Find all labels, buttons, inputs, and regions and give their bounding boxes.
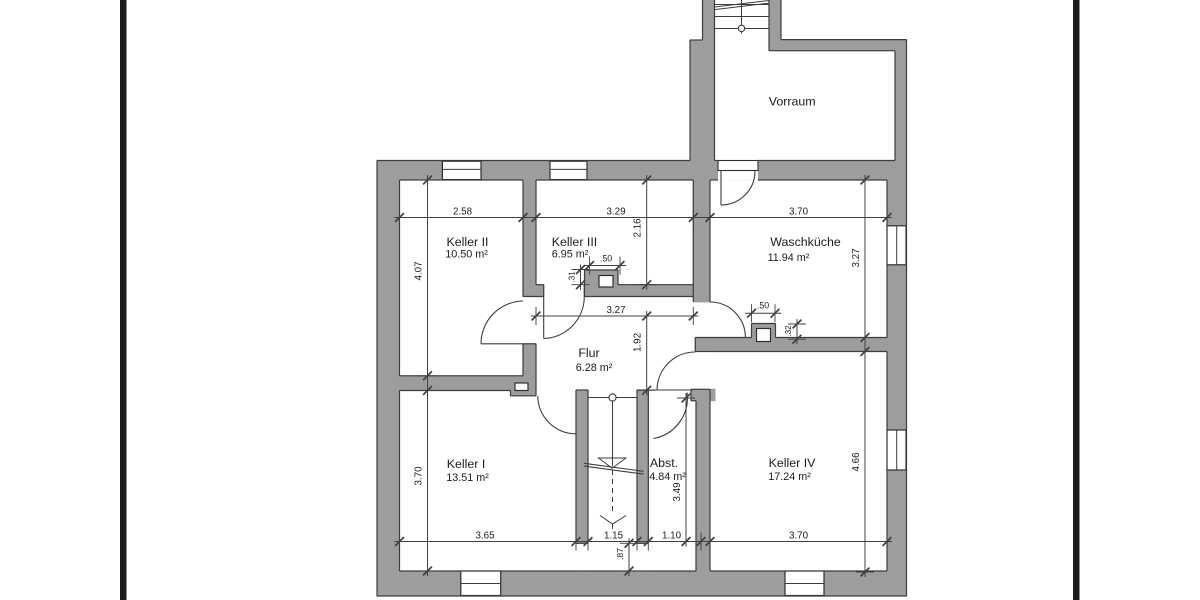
svg-text:Keller III: Keller III [552, 235, 597, 249]
svg-text:Vorraum: Vorraum [769, 95, 816, 109]
svg-text:10.50 m²: 10.50 m² [445, 249, 488, 261]
svg-text:1.92: 1.92 [633, 333, 644, 352]
svg-text:Waschküche: Waschküche [770, 235, 841, 249]
svg-text:3.29: 3.29 [606, 206, 625, 217]
svg-text:17.24 m²: 17.24 m² [768, 471, 811, 483]
svg-text:1.10: 1.10 [662, 530, 682, 541]
svg-text:4.66: 4.66 [851, 452, 862, 472]
svg-text:3.49: 3.49 [672, 482, 683, 501]
svg-text:Keller I: Keller I [447, 457, 486, 471]
svg-text:3.65: 3.65 [475, 530, 495, 541]
svg-text:4.84 m²: 4.84 m² [649, 471, 686, 483]
svg-text:13.51 m²: 13.51 m² [446, 472, 489, 484]
svg-text:3.27: 3.27 [606, 305, 625, 316]
svg-text:.31: .31 [568, 271, 577, 283]
svg-text:.32: .32 [784, 325, 793, 337]
svg-text:6.28 m²: 6.28 m² [576, 362, 613, 374]
svg-text:Keller IV: Keller IV [769, 456, 817, 470]
svg-text:2.58: 2.58 [453, 206, 473, 217]
svg-text:Keller II: Keller II [446, 235, 488, 249]
svg-text:11.94 m²: 11.94 m² [768, 252, 810, 264]
svg-text:3.70: 3.70 [789, 206, 809, 217]
svg-text:2.16: 2.16 [633, 218, 644, 238]
svg-text:3.27: 3.27 [851, 248, 862, 267]
svg-text:.50: .50 [757, 301, 769, 311]
svg-text:Abst.: Abst. [650, 456, 678, 470]
svg-text:.50: .50 [600, 254, 612, 264]
svg-text:3.70: 3.70 [789, 530, 809, 541]
svg-text:4.07: 4.07 [414, 261, 425, 280]
svg-text:.87: .87 [615, 548, 625, 560]
svg-text:Flur: Flur [578, 346, 599, 360]
svg-text:6.95 m²: 6.95 m² [552, 249, 589, 261]
svg-text:1.15: 1.15 [604, 530, 624, 541]
svg-text:3.70: 3.70 [414, 466, 425, 486]
